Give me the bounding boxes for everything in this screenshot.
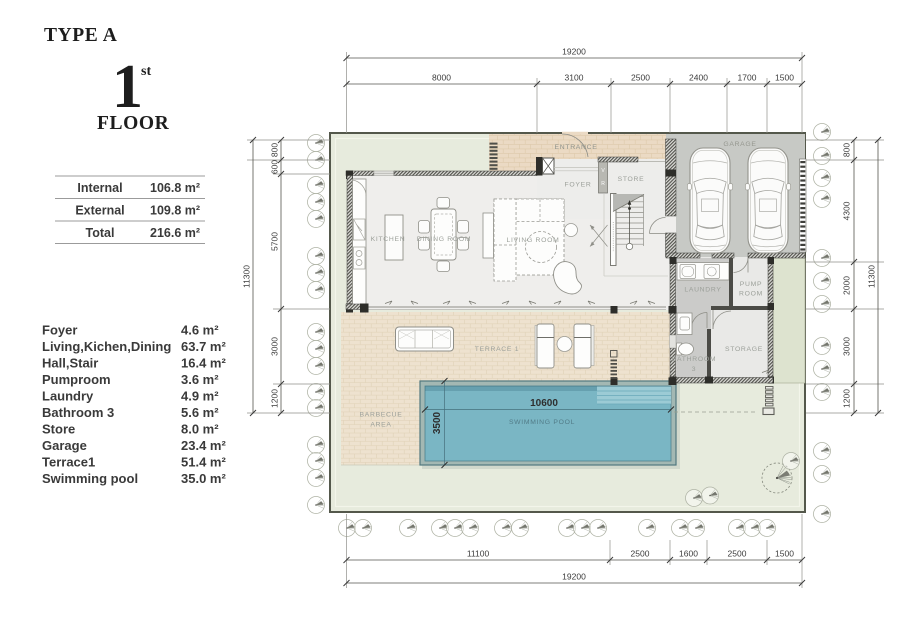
svg-text:Store: Store xyxy=(42,422,75,437)
svg-text:5700: 5700 xyxy=(270,232,280,251)
svg-text:1200: 1200 xyxy=(842,389,852,408)
svg-text:4300: 4300 xyxy=(842,201,852,220)
svg-text:ENTRANCE: ENTRANCE xyxy=(555,144,598,151)
svg-text:35.0 m²: 35.0 m² xyxy=(181,471,226,486)
svg-text:800: 800 xyxy=(270,143,280,157)
svg-text:PUMP: PUMP xyxy=(740,281,762,288)
svg-text:3.6 m²: 3.6 m² xyxy=(181,372,219,387)
svg-text:1500: 1500 xyxy=(775,549,794,559)
svg-text:3000: 3000 xyxy=(842,337,852,356)
svg-text:11300: 11300 xyxy=(242,265,252,288)
svg-text:DINING ROOM: DINING ROOM xyxy=(417,236,472,243)
svg-text:800: 800 xyxy=(842,143,852,157)
svg-text:2500: 2500 xyxy=(728,549,747,559)
svg-text:STORAGE: STORAGE xyxy=(725,346,763,353)
svg-text:2000: 2000 xyxy=(842,276,852,295)
svg-text:st: st xyxy=(141,64,151,79)
svg-text:SWIMMING POOL: SWIMMING POOL xyxy=(509,419,575,426)
svg-text:AREA: AREA xyxy=(370,422,391,429)
svg-text:3500: 3500 xyxy=(432,411,443,434)
svg-text:109.8 m²: 109.8 m² xyxy=(150,204,200,218)
svg-text:51.4 m²: 51.4 m² xyxy=(181,455,226,470)
svg-text:GARAGE: GARAGE xyxy=(723,141,756,148)
svg-text:1500: 1500 xyxy=(775,73,794,83)
svg-text:3: 3 xyxy=(692,366,696,373)
svg-text:2500: 2500 xyxy=(631,549,650,559)
svg-text:63.7 m²: 63.7 m² xyxy=(181,339,226,354)
svg-text:23.4 m²: 23.4 m² xyxy=(181,438,226,453)
svg-text:1200: 1200 xyxy=(270,389,280,408)
svg-text:External: External xyxy=(75,204,124,218)
svg-text:600: 600 xyxy=(270,160,280,174)
svg-text:FOYER: FOYER xyxy=(565,182,592,189)
svg-text:STORE: STORE xyxy=(618,176,645,183)
svg-text:19200: 19200 xyxy=(562,47,586,57)
svg-text:Bathroom 3: Bathroom 3 xyxy=(42,405,114,420)
svg-text:16.4 m²: 16.4 m² xyxy=(181,356,226,371)
svg-text:FLOOR: FLOOR xyxy=(97,113,170,134)
svg-text:2400: 2400 xyxy=(689,73,708,83)
svg-text:4.6 m²: 4.6 m² xyxy=(181,323,219,338)
svg-text:BARBECUE: BARBECUE xyxy=(360,412,403,419)
svg-text:R: R xyxy=(601,181,605,187)
svg-text:Laundry: Laundry xyxy=(42,389,94,404)
svg-text:Living,Kichen,Dining: Living,Kichen,Dining xyxy=(42,339,171,354)
svg-text:2500: 2500 xyxy=(631,73,650,83)
svg-text:LIVING ROOM: LIVING ROOM xyxy=(506,237,559,244)
svg-text:Terrace1: Terrace1 xyxy=(42,455,95,470)
svg-text:4.9 m²: 4.9 m² xyxy=(181,389,219,404)
svg-text:1700: 1700 xyxy=(738,73,757,83)
svg-text:10600: 10600 xyxy=(530,398,558,409)
svg-text:Swimming pool: Swimming pool xyxy=(42,471,138,486)
svg-text:19200: 19200 xyxy=(562,572,586,582)
svg-text:KITCHEN: KITCHEN xyxy=(371,236,406,243)
svg-text:Total: Total xyxy=(86,226,115,240)
svg-text:8.0 m²: 8.0 m² xyxy=(181,422,219,437)
svg-text:3100: 3100 xyxy=(565,73,584,83)
svg-text:ROOM: ROOM xyxy=(739,291,763,298)
svg-text:TERRACE 1: TERRACE 1 xyxy=(475,346,519,353)
svg-text:1: 1 xyxy=(112,53,143,121)
svg-text:Internal: Internal xyxy=(77,181,122,195)
svg-text:TYPE A: TYPE A xyxy=(44,25,118,46)
svg-text:Foyer: Foyer xyxy=(42,323,77,338)
svg-text:1600: 1600 xyxy=(679,549,698,559)
svg-text:5.6 m²: 5.6 m² xyxy=(181,405,219,420)
svg-text:216.6 m²: 216.6 m² xyxy=(150,226,200,240)
svg-text:BATHROOM: BATHROOM xyxy=(672,356,716,363)
svg-text:Pumproom: Pumproom xyxy=(42,372,111,387)
svg-text:11100: 11100 xyxy=(467,549,490,559)
svg-text:11300: 11300 xyxy=(867,265,877,288)
svg-text:8000: 8000 xyxy=(432,73,451,83)
svg-text:Garage: Garage xyxy=(42,438,87,453)
svg-text:106.8 m²: 106.8 m² xyxy=(150,181,200,195)
svg-text:Hall,Stair: Hall,Stair xyxy=(42,356,98,371)
svg-text:LAUNDRY: LAUNDRY xyxy=(684,287,721,294)
svg-text:3000: 3000 xyxy=(270,337,280,356)
